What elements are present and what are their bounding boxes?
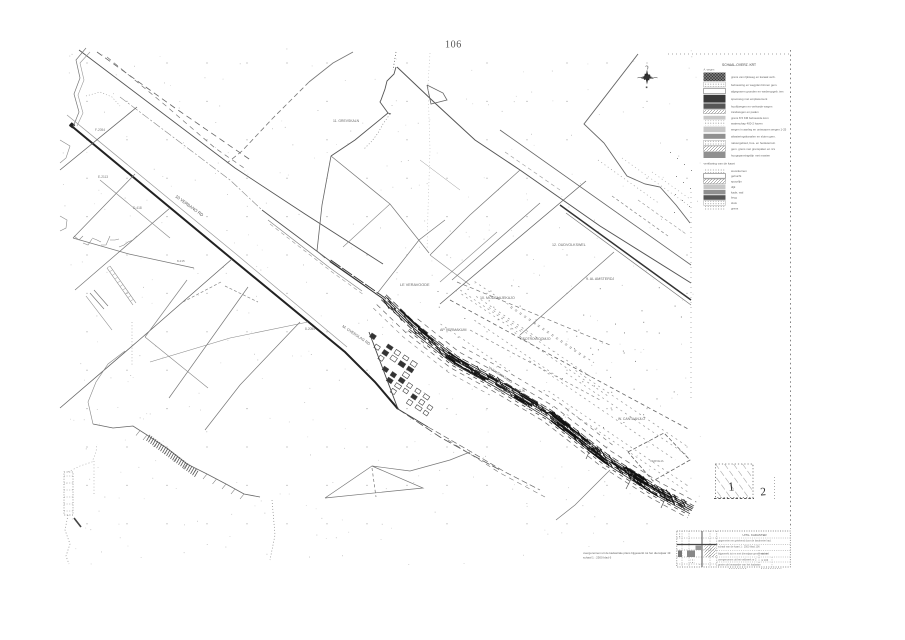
svg-text:grens 8.5 KM bebouwde kom: grens 8.5 KM bebouwde kom [731,116,769,120]
svg-text:brug: brug [731,196,737,200]
svg-text:dijk: dijk [731,185,736,189]
svg-text:D-418: D-418 [133,206,142,210]
svg-text:overgenomen uit de kadastrale: overgenomen uit de kadastrale plans bijg… [583,551,671,555]
svg-text:zandwegen en paden: zandwegen en paden [731,110,759,114]
svg-text:SCHAAL-OVERZ. KRT: SCHAAL-OVERZ. KRT [722,63,756,67]
svg-text:kade, wal: kade, wal [731,190,744,194]
svg-text:ADRIANKE BOJK: ADRIANKE BOJK [498,389,526,393]
svg-text:VERVEJA: VERVEJA [650,459,664,463]
svg-text:9. AL AMSTERDJ: 9. AL AMSTERDJ [586,277,614,281]
svg-text:wegen in aanleg en ontworpen w: wegen in aanleg en ontworpen wegen 1-25 [731,128,787,132]
svg-text:gem. grens met grenspalen en n: gem. grens met grenspalen en nrs [731,147,776,151]
svg-text:bebouwing en wegplan binnen ge: bebouwing en wegplan binnen gem. [731,83,777,87]
svg-text:schaal van de kaart 1 : 2500 b: schaal van de kaart 1 : 2500 blad 106 [718,546,760,549]
svg-text:gehucht: gehucht [731,174,741,178]
svg-text:archief: archief [761,553,769,556]
svg-text:woonkernen: woonkernen [731,169,747,173]
svg-text:waterschap 400-2 haven: waterschap 400-2 haven [731,121,763,125]
svg-text:natuurgebied, bos- en heideter: natuurgebied, bos- en heideterrein [731,141,776,145]
svg-text:8-2054: 8-2054 [305,327,315,331]
svg-text:verklaring van de kaart: verklaring van de kaart [704,162,735,166]
svg-text:GEOTRO ROOMJO: GEOTRO ROOMJO [520,337,551,341]
svg-text:spoorweg met emplacement: spoorweg met emplacement [731,97,768,101]
svg-text:sluis: sluis [731,201,737,205]
svg-text:AP VERMAKUM: AP VERMAKUM [440,328,467,332]
svg-text:2: 2 [760,486,767,498]
svg-text:schaal 1 : 2500 blad 6: schaal 1 : 2500 blad 6 [583,556,612,560]
svg-text:E-2113: E-2113 [98,175,108,179]
svg-text:UITG. KADASTER: UITG. KADASTER [743,533,767,537]
svg-text:11. GREVSKALN: 11. GREVSKALN [333,119,360,123]
svg-text:grens: grens [731,207,739,211]
svg-text:opgemeten en getekend door de: opgemeten en getekend door de landmeter … [718,540,772,543]
svg-text:nr 106: nr 106 [761,559,769,562]
svg-text:gezien de bewaarder van het ka: gezien de bewaarder van het kadaster [718,564,761,567]
svg-text:afgegraven gronden en wederopg: afgegraven gronden en wederopgeb. terr. [731,89,784,93]
svg-text:12. OUDVOLKSWEL: 12. OUDVOLKSWEL [552,243,586,247]
svg-text:LE VERAVOODE: LE VERAVOODE [400,283,430,287]
svg-text:A. wegen: A. wegen [704,68,715,72]
svg-text:F-2054: F-2054 [95,128,105,132]
svg-text:afwateringskanalen en sloten g: afwateringskanalen en sloten gem. [731,135,776,139]
svg-text:W. CANTAANJLO: W. CANTAANJLO [618,417,645,421]
svg-text:hoofdwegen en verharde wegen: hoofdwegen en verharde wegen [731,104,773,108]
svg-text:overgenomen uit het veldwerk n: overgenomen uit het veldwerk nr 2 [718,559,757,562]
svg-text:10. MODELAJEKAJO: 10. MODELAJEKAJO [480,296,515,300]
svg-text:spoorlijn: spoorlijn [731,180,742,184]
svg-text:106: 106 [445,40,462,51]
svg-text:grens van rijksweg en kanaal v: grens van rijksweg en kanaal verb. [731,75,776,79]
svg-text:8-215: 8-215 [177,259,185,263]
svg-text:hoogspanningslijn met masten: hoogspanningslijn met masten [731,153,770,157]
